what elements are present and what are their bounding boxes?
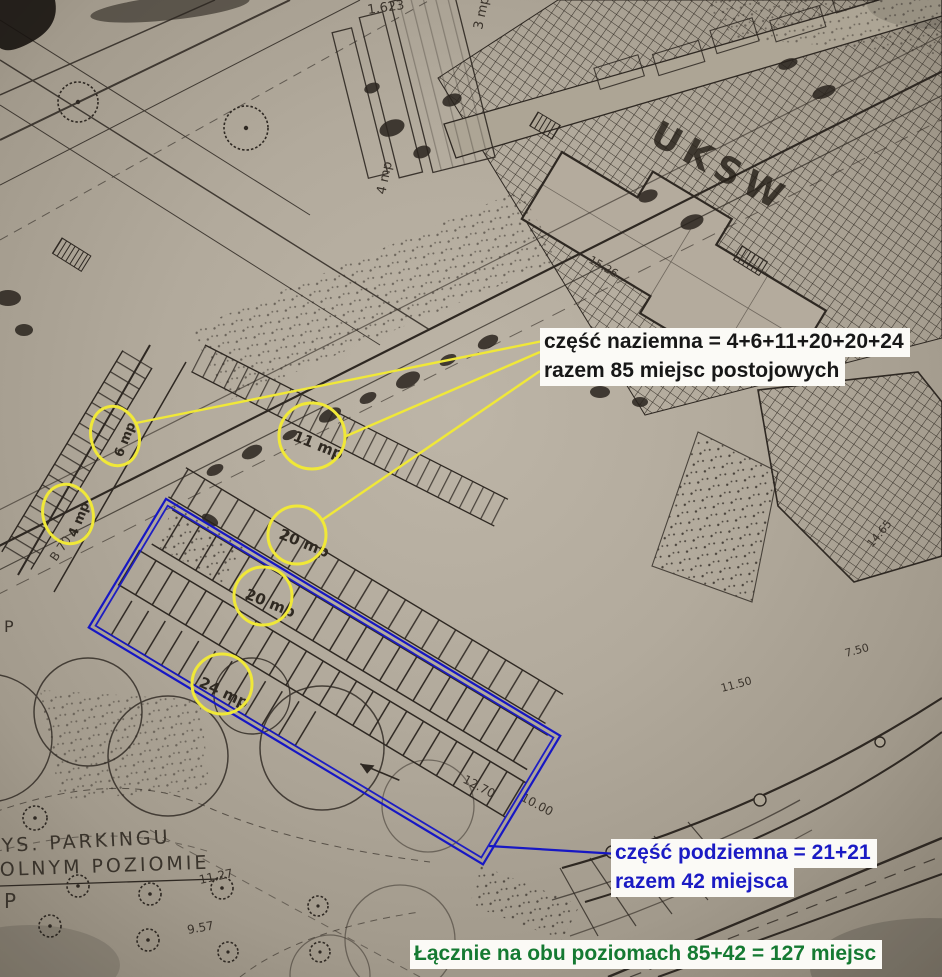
annotation-above-ground-line2: razem 85 miejsc postojowych xyxy=(540,357,845,386)
scanned-site-plan-photo: 1.623 3 mp 4 mp 15.26 14.65 11.50 7.50 1… xyxy=(0,0,942,977)
annotation-total: Łącznie na obu poziomach 85+42 = 127 mie… xyxy=(410,940,882,969)
site-plan-svg: 1.623 3 mp 4 mp 15.26 14.65 11.50 7.50 1… xyxy=(0,0,942,977)
annotation-above-ground: część naziemna = 4+6+11+20+20+24 razem 8… xyxy=(540,328,910,386)
annotation-above-ground-line1: część naziemna = 4+6+11+20+20+24 xyxy=(540,328,910,357)
map-number: P xyxy=(4,617,14,636)
annotation-underground-line1: część podziemna = 21+21 xyxy=(611,839,877,868)
annotation-total-line1: Łącznie na obu poziomach 85+42 = 127 mie… xyxy=(410,940,882,969)
drawing-caption-p: P xyxy=(4,889,19,913)
annotation-underground: część podziemna = 21+21 razem 42 miejsca xyxy=(611,839,877,897)
annotation-underground-line2: razem 42 miejsca xyxy=(611,868,794,897)
